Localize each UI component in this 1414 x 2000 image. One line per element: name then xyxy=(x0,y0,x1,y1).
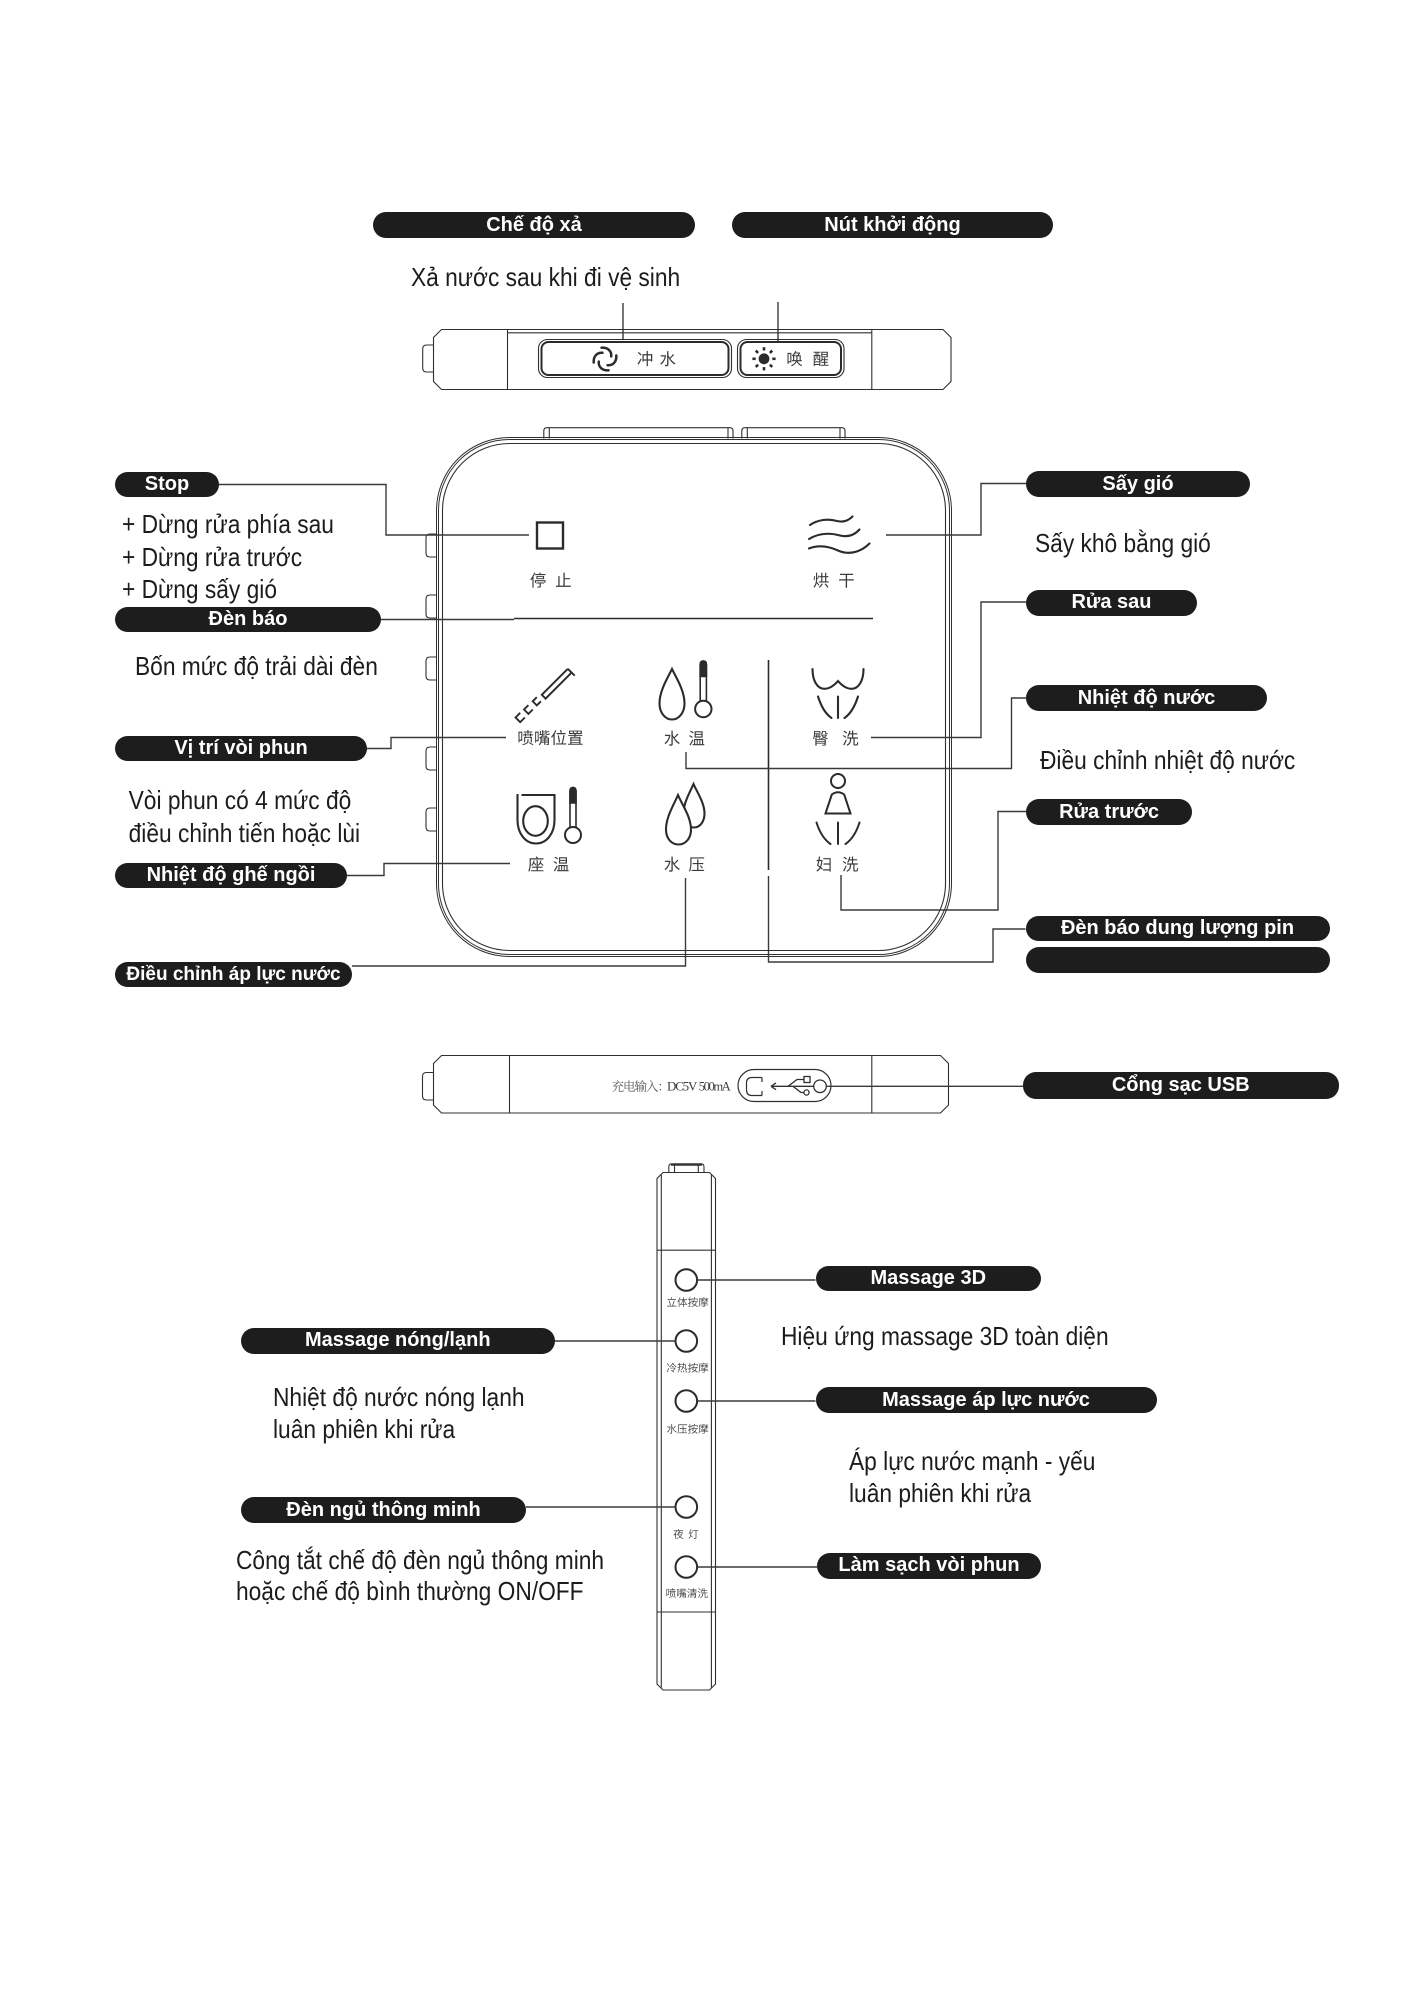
svg-text:500mA: 500mA xyxy=(699,1080,731,1094)
svg-text:DC5V: DC5V xyxy=(667,1079,698,1094)
